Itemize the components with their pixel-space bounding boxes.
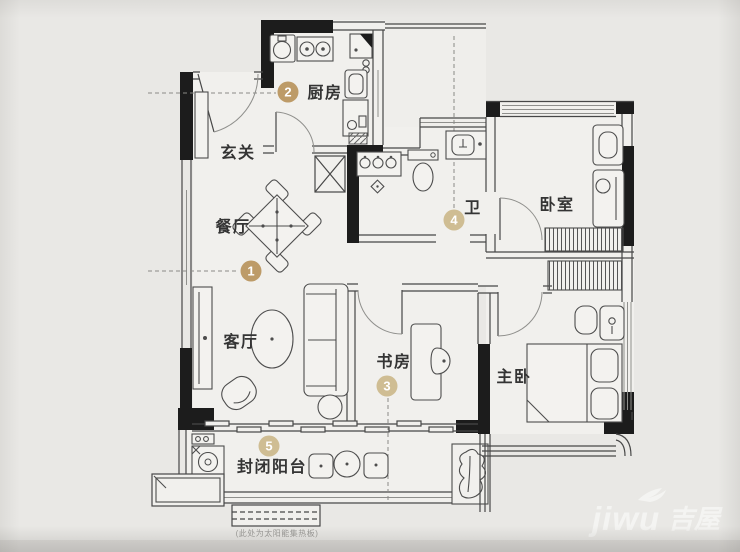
pouf [309,454,333,478]
sofa-side-table [318,395,342,419]
svg-text:5: 5 [265,439,272,454]
wardrobe-bedroom [545,228,623,251]
badge-2: 2 [278,82,299,103]
shaft [315,156,345,192]
svg-text:吉屋: 吉屋 [668,504,723,534]
kitchen-sink [270,35,295,62]
room-label-bedroom: 卧室 [539,195,574,214]
photo-bottom-band [0,540,740,552]
room-label-kitchen: 厨房 [307,83,342,102]
room-label-dining: 餐厅 [214,217,250,236]
badge-4: 4 [444,210,465,231]
bath-vanity [357,152,401,176]
floorplan-drawing: (此处为太阳能集热板) 玄关 厨房 餐厅 客厅 书房 卫 卧室 主卧 封闭阳台 … [0,0,740,552]
svg-text:jiwu: jiwu [588,500,660,537]
stove [297,37,333,61]
svg-text:3: 3 [383,379,390,394]
single-bed [593,170,624,227]
tv-cabinet [193,287,212,389]
room-label-living: 客厅 [223,332,258,351]
badge-1: 1 [241,261,262,282]
floorplan-photo: (此处为太阳能集热板) 玄关 厨房 餐厅 客厅 书房 卫 卧室 主卧 封闭阳台 … [0,0,740,552]
fridge [350,34,372,58]
solar-panel-strip [232,505,320,526]
bedroom-dresser [593,125,623,165]
room-label-bath: 卫 [464,200,482,217]
sofa [304,284,348,396]
pouf [364,453,388,478]
kitchen-counter [343,70,368,136]
svg-text:1: 1 [247,264,254,279]
shoe-cabinet [195,92,208,158]
solar-caption: (此处为太阳能集热板) [236,528,319,538]
watermark: jiwu 吉屋 [588,488,723,537]
room-label-study: 书房 [376,352,411,371]
double-bed [527,344,622,422]
badge-5: 5 [259,436,280,457]
flower-box [152,474,224,506]
balcony-table [334,451,360,477]
room-label-master: 主卧 [496,367,531,386]
laundry-shelf [192,434,214,444]
bath-sink [446,131,486,159]
room-label-balcony: 封闭阳台 [237,457,307,476]
badge-3: 3 [377,376,398,397]
vanity-stool [575,306,597,334]
svg-text:2: 2 [284,85,291,100]
nightstand [600,306,624,340]
room-label-entry: 玄关 [220,143,255,162]
wardrobe-master [548,261,622,290]
svg-text:4: 4 [450,213,458,228]
flue [349,133,367,144]
washing-machine [192,446,224,478]
